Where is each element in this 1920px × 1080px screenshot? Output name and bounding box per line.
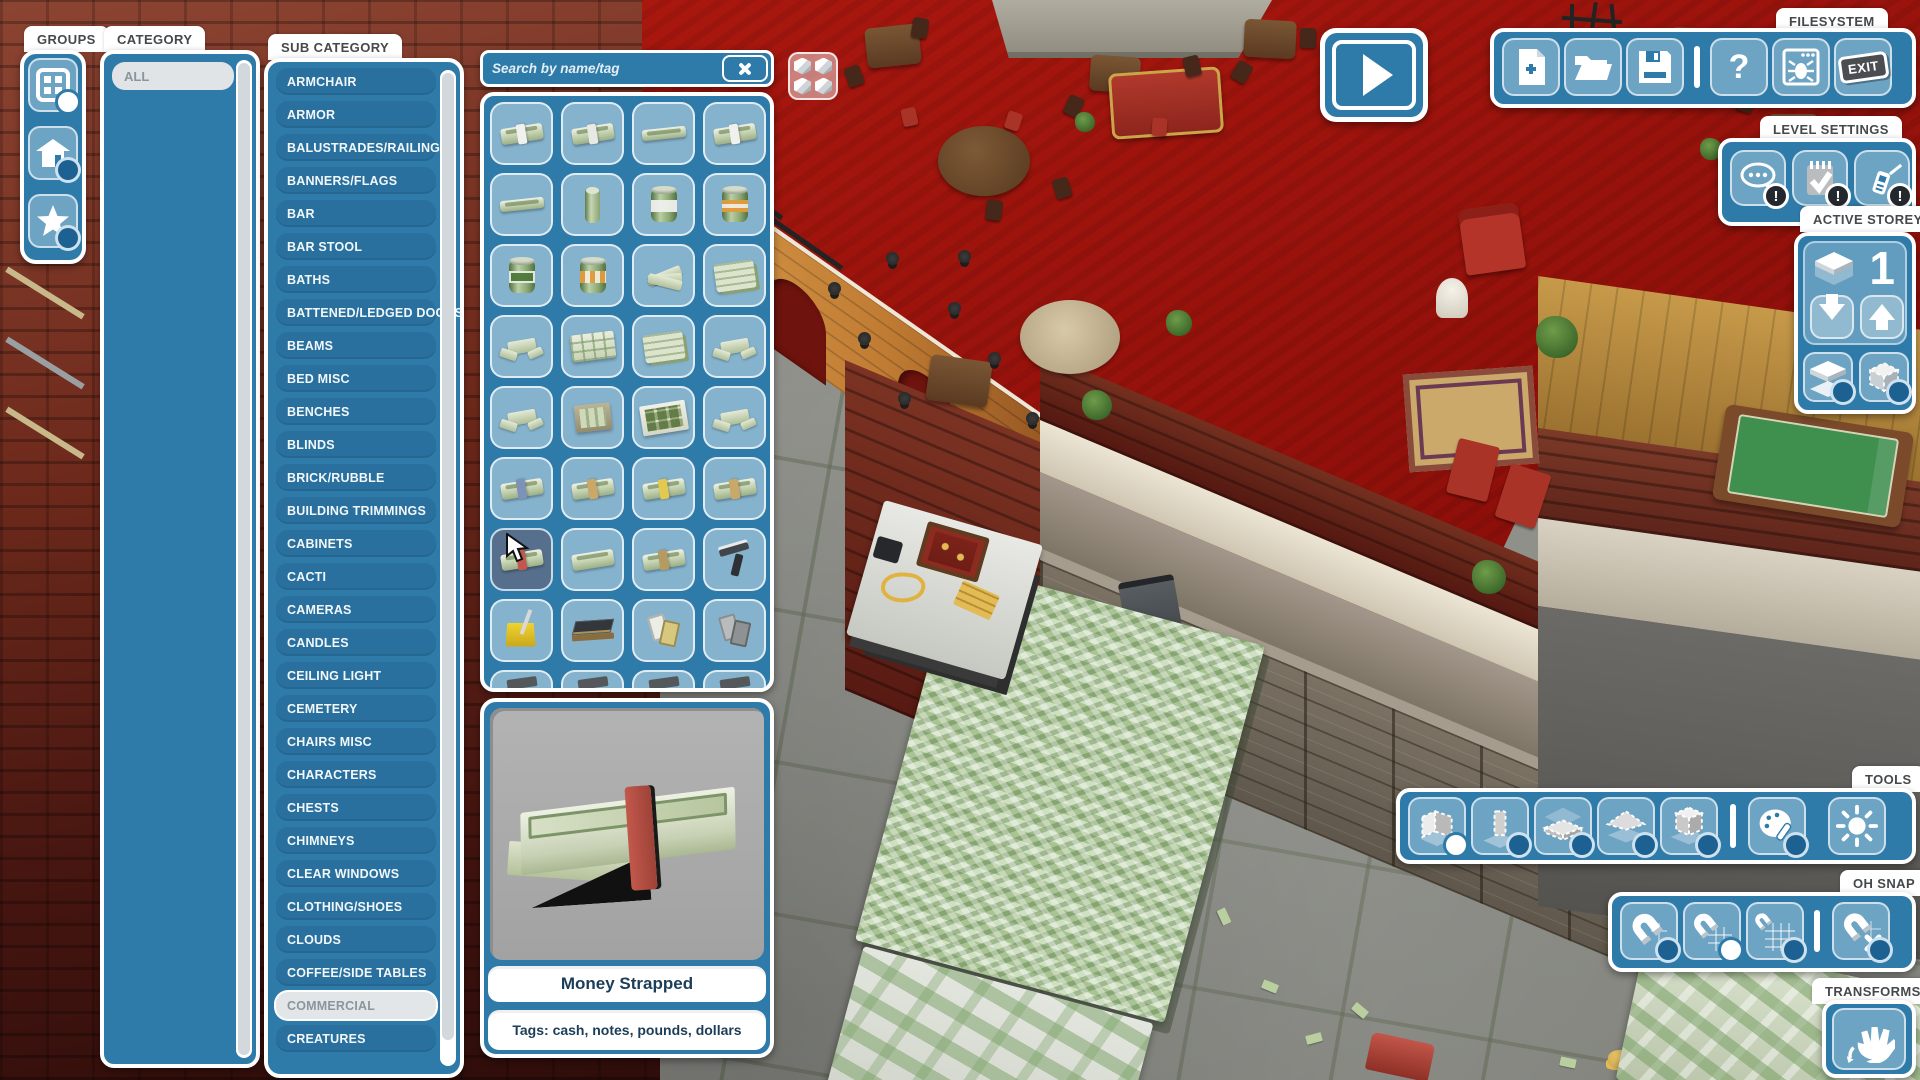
item-partial-icon xyxy=(636,674,692,693)
inactive-badge xyxy=(1830,379,1856,405)
money-pile-roll-icon xyxy=(707,319,763,375)
strap-tan-band-icon xyxy=(565,461,621,517)
money-note-stack-icon xyxy=(636,106,692,162)
item-partial-icon xyxy=(707,674,763,693)
subcategory-item-ceiling-light[interactable]: CEILING LIGHT xyxy=(276,662,436,689)
subcategory-item-banners-flags[interactable]: BANNERS/FLAGS xyxy=(276,167,436,194)
scene-prop-roundtable xyxy=(938,126,1030,196)
subcategory-item-label: CLOTHING/SHOES xyxy=(287,900,402,914)
item-tile-item-partial[interactable] xyxy=(490,670,553,692)
subcategory-item-label: BANNERS/FLAGS xyxy=(287,174,397,188)
cube-icon xyxy=(794,78,811,95)
inactive-badge xyxy=(1506,832,1532,858)
subcategory-item-label: CREATURES xyxy=(287,1032,366,1046)
level-editor-screen: GROUPS CATEGORY ALL xyxy=(0,0,1920,1080)
desk-name-plate-icon xyxy=(565,603,621,659)
subcategory-item-chairs-misc[interactable]: CHAIRS MISC xyxy=(276,728,436,755)
item-tile-wallet-open-grey[interactable] xyxy=(703,599,766,662)
bug-report-icon xyxy=(1781,47,1821,87)
cube-icon xyxy=(815,58,832,75)
money-strap-banded-icon xyxy=(707,106,763,162)
item-tile-money-pile-small[interactable] xyxy=(490,315,553,378)
item-tile-strap-blue-band[interactable] xyxy=(490,457,553,520)
scene-prop-plant xyxy=(1082,390,1112,420)
oh-snap-tab-label: OH SNAP xyxy=(1853,876,1915,891)
strap-blue-band-icon xyxy=(494,461,550,517)
search-close-button[interactable] xyxy=(722,55,768,82)
scene-prop-plant xyxy=(1166,310,1192,336)
subcategory-item-clouds[interactable]: CLOUDS xyxy=(276,926,436,953)
subcategory-item-blinds[interactable]: BLINDS xyxy=(276,431,436,458)
warning-badge: ! xyxy=(1763,183,1789,209)
item-tile-money-bundle-block[interactable] xyxy=(703,244,766,307)
group-all-button[interactable] xyxy=(28,58,78,112)
item-tile-money-strap-banded[interactable] xyxy=(703,102,766,165)
subcategory-item-battened-ledged-doors[interactable]: BATTENED/LEDGED DOORS xyxy=(276,299,436,326)
mop-bucket-icon xyxy=(494,603,550,659)
subcategory-item-label: CHESTS xyxy=(287,801,339,815)
subcategory-item-creatures[interactable]: CREATURES xyxy=(276,1025,436,1052)
snap-fine-grid-button[interactable] xyxy=(1746,902,1804,960)
scene-prop-chair xyxy=(910,17,929,39)
money-bundles-icon xyxy=(636,319,692,375)
scene-prop-chair xyxy=(985,199,1004,221)
coin-can-orange-icon xyxy=(707,177,763,233)
inactive-badge xyxy=(55,157,81,183)
subcategory-item-balustrades-railings[interactable]: BALUSTRADES/RAILINGS xyxy=(276,134,436,161)
subcategory-item-chests[interactable]: CHESTS xyxy=(276,794,436,821)
item-tile-coin-can-striped[interactable] xyxy=(561,244,624,307)
warning-label: ! xyxy=(1898,188,1903,205)
subcategory-item-label: BLINDS xyxy=(287,438,335,452)
scene-prop-table xyxy=(925,354,993,408)
view-cubes-widget[interactable] xyxy=(788,52,838,100)
subcategory-item-label: ARMCHAIR xyxy=(287,75,357,89)
inactive-badge xyxy=(1867,937,1893,963)
item-name-text: Money Strapped xyxy=(561,974,693,994)
active-storey-tab-label: ACTIVE STOREY xyxy=(1813,212,1920,227)
new-file-button[interactable] xyxy=(1502,38,1560,96)
subcategory-item-bar[interactable]: BAR xyxy=(276,200,436,227)
mouse-cursor xyxy=(505,533,535,563)
inactive-badge xyxy=(1886,379,1912,405)
paint-tool-button[interactable] xyxy=(1748,797,1806,855)
help-button[interactable]: ? xyxy=(1710,38,1768,96)
storey-selector: 1 xyxy=(1803,241,1907,345)
subcategory-item-label: BATHS xyxy=(287,273,330,287)
inactive-badge xyxy=(1655,937,1681,963)
cube-icon xyxy=(794,58,811,75)
exit-icon: EXIT xyxy=(1837,50,1889,84)
subcategory-scrollbar[interactable] xyxy=(440,70,456,1066)
wallet-open-grey-icon xyxy=(707,603,763,659)
subcategory-item-chimneys[interactable]: CHIMNEYS xyxy=(276,827,436,854)
level-settings-tab-label: LEVEL SETTINGS xyxy=(1773,122,1889,137)
level-checklist-button[interactable]: ! xyxy=(1792,150,1848,206)
snap-off-button[interactable] xyxy=(1832,902,1890,960)
item-tile-desk-name-plate[interactable] xyxy=(561,599,624,662)
subcategory-item-label: BALUSTRADES/RAILINGS xyxy=(287,141,449,155)
subcategory-item-armor[interactable]: ARMOR xyxy=(276,101,436,128)
item-tile-coin-can-white[interactable] xyxy=(632,173,695,236)
snap-object-button[interactable] xyxy=(1620,902,1678,960)
money-scatter-icon xyxy=(494,390,550,446)
wallet-open-light-icon xyxy=(636,603,692,659)
item-tile-item-partial[interactable] xyxy=(561,670,624,692)
scene-prop-table xyxy=(1243,19,1297,60)
money-strap-bent-icon xyxy=(565,106,621,162)
new-file-icon xyxy=(1513,47,1549,87)
subcategory-item-label: CANDLES xyxy=(287,636,349,650)
category-tab: CATEGORY xyxy=(104,26,205,52)
subcategory-item-label: BATTENED/LEDGED DOORS xyxy=(287,306,463,320)
block-tool-button[interactable] xyxy=(1660,797,1718,855)
subcategory-item-label: COFFEE/SIDE TABLES xyxy=(287,966,427,980)
oh-snap-panel xyxy=(1608,892,1916,972)
divider xyxy=(1694,46,1700,88)
inactive-badge xyxy=(1781,937,1807,963)
active-storey-tab: ACTIVE STOREY xyxy=(1800,206,1920,232)
storey-down-icon xyxy=(1819,304,1845,320)
subcategory-item-label: CEMETERY xyxy=(287,702,358,716)
category-panel: ALL xyxy=(100,50,260,1068)
subcategory-item-candles[interactable]: CANDLES xyxy=(276,629,436,656)
item-tile-strap-rubber-band[interactable] xyxy=(632,528,695,591)
subcategory-item-cameras[interactable]: CAMERAS xyxy=(276,596,436,623)
subcategory-item-label: BENCHES xyxy=(287,405,350,419)
scene-prop-stool xyxy=(958,250,971,263)
item-tile-item-partial[interactable] xyxy=(703,670,766,692)
category-tab-label: CATEGORY xyxy=(117,32,192,47)
play-button[interactable] xyxy=(1325,33,1423,117)
subcategory-item-benches[interactable]: BENCHES xyxy=(276,398,436,425)
money-loose-pile-icon xyxy=(707,390,763,446)
coin-can-white-icon xyxy=(636,177,692,233)
scene-prop-stool xyxy=(886,252,899,265)
item-grid xyxy=(490,102,772,692)
subcategory-item-baths[interactable]: BATHS xyxy=(276,266,436,293)
subcategory-item-brick-rubble[interactable]: BRICK/RUBBLE xyxy=(276,464,436,491)
item-tile-coin-can-orange[interactable] xyxy=(703,173,766,236)
item-tile-money-strap[interactable] xyxy=(490,102,553,165)
subcategory-item-label: CHARACTERS xyxy=(287,768,377,782)
storey-down-button[interactable] xyxy=(1810,295,1854,339)
open-folder-icon xyxy=(1572,50,1614,84)
item-partial-icon xyxy=(494,674,550,693)
group-home-button[interactable] xyxy=(28,126,78,180)
money-tray-icon xyxy=(565,319,621,375)
single-block-button[interactable] xyxy=(1859,352,1909,402)
subcategory-item-label: CLOUDS xyxy=(287,933,341,947)
item-preview-image xyxy=(490,708,764,960)
rotate-hand-icon xyxy=(1843,1015,1895,1063)
scene-prop-stool xyxy=(828,282,841,295)
subcategory-item-label: COMMERCIAL xyxy=(287,999,375,1013)
inactive-badge xyxy=(1695,832,1721,858)
subcategory-item-clothing-shoes[interactable]: CLOTHING/SHOES xyxy=(276,893,436,920)
item-tile-mop-bucket[interactable] xyxy=(490,599,553,662)
money-roll-icon xyxy=(565,177,621,233)
subcategory-item-characters[interactable]: CHARACTERS xyxy=(276,761,436,788)
item-tile-money-strap-bent[interactable] xyxy=(561,102,624,165)
item-tile-money-tray[interactable] xyxy=(561,315,624,378)
subcategory-item-beams[interactable]: BEAMS xyxy=(276,332,436,359)
subcategory-item-label: BAR xyxy=(287,207,315,221)
category-item-all[interactable]: ALL xyxy=(112,62,234,90)
subcategory-item-label: BRICK/RUBBLE xyxy=(287,471,385,485)
coin-can-green-icon xyxy=(494,248,550,304)
scene-prop-stool xyxy=(1026,412,1039,425)
save-button[interactable] xyxy=(1626,38,1684,96)
subcategory-item-cabinets[interactable]: CABINETS xyxy=(276,530,436,557)
active-badge xyxy=(1443,832,1469,858)
level-radio-button[interactable]: ! xyxy=(1854,150,1910,206)
item-tile-money-roll[interactable] xyxy=(561,173,624,236)
subcategory-panel: ARMCHAIRARMORBALUSTRADES/RAILINGSBANNERS… xyxy=(264,58,464,1078)
scene-prop-stool xyxy=(898,392,911,405)
scene-prop-redseat xyxy=(1151,117,1167,136)
scene-prop-whitecloth xyxy=(1020,300,1120,374)
item-tile-money-box[interactable] xyxy=(561,386,624,449)
subcategory-item-clear-windows[interactable]: CLEAR WINDOWS xyxy=(276,860,436,887)
inactive-badge xyxy=(1569,832,1595,858)
subcategory-item-label: CAMERAS xyxy=(287,603,352,617)
subcategory-scroll-thumb[interactable] xyxy=(442,73,454,1040)
rotate-transform-button[interactable] xyxy=(1832,1008,1906,1070)
scene-prop-stool xyxy=(948,302,961,315)
subcategory-item-label: BEAMS xyxy=(287,339,333,353)
scene-prop-plant xyxy=(1075,112,1095,132)
warning-label: ! xyxy=(1774,188,1779,205)
scene-prop-plant xyxy=(1536,316,1578,358)
category-scrollbar[interactable] xyxy=(236,60,252,1058)
cube-icon xyxy=(815,78,832,95)
subcategory-item-coffee-side-tables[interactable]: COFFEE/SIDE TABLES xyxy=(276,959,436,986)
strap-tan-band-2-icon xyxy=(707,461,763,517)
category-item-label: ALL xyxy=(124,69,149,84)
subcategory-tab: SUB CATEGORY xyxy=(268,34,402,60)
scene-prop-plant xyxy=(1472,560,1506,594)
play-button-outline xyxy=(1332,40,1416,110)
tools-tab-label: TOOLS xyxy=(1865,772,1912,787)
subcategory-item-label: CEILING LIGHT xyxy=(287,669,381,683)
gold-bars xyxy=(953,580,1000,620)
storey-number: 1 xyxy=(1869,241,1895,295)
item-tile-money-loose-pile[interactable] xyxy=(703,386,766,449)
subcategory-item-cacti[interactable]: CACTI xyxy=(276,563,436,590)
item-tile-coin-can-green[interactable] xyxy=(490,244,553,307)
item-tile-money-scatter[interactable] xyxy=(490,386,553,449)
item-partial-icon xyxy=(565,674,621,693)
inactive-badge xyxy=(1783,832,1809,858)
help-icon: ? xyxy=(1729,48,1750,87)
group-favorites-button[interactable] xyxy=(28,194,78,248)
wall-tool-button[interactable] xyxy=(1408,797,1466,855)
money-pile-small-icon xyxy=(494,319,550,375)
jewelry-display-case xyxy=(916,521,990,583)
scene-prop-stool xyxy=(858,332,871,345)
roof-tool-button[interactable] xyxy=(1597,797,1655,855)
inactive-badge xyxy=(1632,832,1658,858)
item-tile-strap-yellow-band[interactable] xyxy=(632,457,695,520)
filesystem-tab-label: FILESYSTEM xyxy=(1789,14,1875,29)
subcategory-item-building-trimmings[interactable]: BUILDING TRIMMINGS xyxy=(276,497,436,524)
lighting-tool-icon xyxy=(1834,803,1880,849)
snap-grid-button[interactable] xyxy=(1683,902,1741,960)
item-name-label: Money Strapped xyxy=(488,966,766,1002)
money-bundle-block-icon xyxy=(707,248,763,304)
subcategory-item-label: ARMOR xyxy=(287,108,335,122)
save-icon xyxy=(1636,48,1674,86)
item-tile-wallet-open-light[interactable] xyxy=(632,599,695,662)
strap-rubber-band-icon xyxy=(636,532,692,588)
item-tags-text: Tags: cash, notes, pounds, dollars xyxy=(512,1022,741,1038)
divider xyxy=(1814,910,1820,952)
scene-prop-chair xyxy=(1300,28,1316,48)
item-tile-money-brick-tray[interactable] xyxy=(632,386,695,449)
item-tags-label: Tags: cash, notes, pounds, dollars xyxy=(488,1010,766,1050)
play-button-frame xyxy=(1320,28,1428,122)
subcategory-list: ARMCHAIRARMORBALUSTRADES/RAILINGSBANNERS… xyxy=(276,68,436,1058)
category-scroll-thumb[interactable] xyxy=(238,63,250,1055)
subcategory-item-label: CHIMNEYS xyxy=(287,834,355,848)
exit-button[interactable]: EXIT xyxy=(1834,38,1892,96)
lighting-tool-button[interactable] xyxy=(1828,797,1886,855)
item-browser-panel xyxy=(480,92,774,692)
groups-panel xyxy=(20,50,86,264)
item-tile-item-partial[interactable] xyxy=(632,670,695,692)
search-bar[interactable]: Search by name/tag xyxy=(480,50,774,87)
money-fan-icon xyxy=(636,248,692,304)
item-tile-money-stack-flat[interactable] xyxy=(490,173,553,236)
subcategory-item-bed-misc[interactable]: BED MISC xyxy=(276,365,436,392)
open-folder-button[interactable] xyxy=(1564,38,1622,96)
money-box-icon xyxy=(565,390,621,446)
subcategory-item-label: CLEAR WINDOWS xyxy=(287,867,399,881)
item-tile-strap-tan-band-2[interactable] xyxy=(703,457,766,520)
show-all-floors-button[interactable] xyxy=(1803,352,1853,402)
level-comments-button[interactable]: ! xyxy=(1730,150,1786,206)
floor-tool-button[interactable] xyxy=(1534,797,1592,855)
item-tile-money-fan[interactable] xyxy=(632,244,695,307)
transforms-tab-label: TRANSFORMS xyxy=(1825,984,1920,999)
subcategory-item-label: BED MISC xyxy=(287,372,350,386)
gold-necklace xyxy=(880,571,926,604)
warning-label: ! xyxy=(1836,188,1841,205)
subcategory-item-label: CHAIRS MISC xyxy=(287,735,372,749)
subcategory-item-label: BUILDING TRIMMINGS xyxy=(287,504,426,518)
subcategory-tab-label: SUB CATEGORY xyxy=(281,40,389,55)
item-preview-panel: Money Strapped Tags: cash, notes, pounds… xyxy=(480,698,774,1058)
active-badge xyxy=(1718,937,1744,963)
money-brick-tray-icon xyxy=(636,390,692,446)
search-input[interactable]: Search by name/tag xyxy=(483,61,722,76)
storey-up-button[interactable] xyxy=(1860,295,1904,339)
item-tile-money-bundles[interactable] xyxy=(632,315,695,378)
divider xyxy=(1730,804,1736,848)
storey-slab-icon xyxy=(1809,245,1859,289)
strap-yellow-band-icon xyxy=(636,461,692,517)
scene-prop-stool xyxy=(988,352,1001,365)
active-storey-panel: 1 xyxy=(1794,232,1916,414)
column-tool-button[interactable] xyxy=(1471,797,1529,855)
subcategory-item-commercial[interactable]: COMMERCIAL xyxy=(276,992,436,1019)
item-tile-money-note-stack[interactable] xyxy=(632,102,695,165)
money-strap-icon xyxy=(494,106,550,162)
groups-tab: GROUPS xyxy=(24,26,109,52)
subcategory-item-cemetery[interactable]: CEMETERY xyxy=(276,695,436,722)
storey-up-icon xyxy=(1869,304,1895,320)
camera-prop xyxy=(872,536,903,564)
subcategory-item-armchair[interactable]: ARMCHAIR xyxy=(276,68,436,95)
subcategory-item-label: BAR STOOL xyxy=(287,240,362,254)
scene-prop-lamp xyxy=(1436,278,1468,318)
item-tile-squeegee[interactable] xyxy=(703,528,766,591)
coin-can-striped-icon xyxy=(565,248,621,304)
filesystem-panel: ? EXIT xyxy=(1490,28,1916,108)
subcategory-item-label: CABINETS xyxy=(287,537,353,551)
strap-plain-icon xyxy=(565,532,621,588)
subcategory-item-bar-stool[interactable]: BAR STOOL xyxy=(276,233,436,260)
scene-prop-armchair xyxy=(1458,202,1527,276)
tools-panel xyxy=(1396,788,1916,864)
stone-steps xyxy=(992,0,1272,58)
bug-report-button[interactable] xyxy=(1772,38,1830,96)
item-tile-strap-tan-band[interactable] xyxy=(561,457,624,520)
groups-tab-label: GROUPS xyxy=(37,32,96,47)
inactive-badge xyxy=(55,225,81,251)
squeegee-icon xyxy=(707,532,763,588)
item-tile-strap-plain[interactable] xyxy=(561,528,624,591)
transforms-panel xyxy=(1822,1000,1916,1078)
subcategory-item-label: CACTI xyxy=(287,570,326,584)
item-tile-money-pile-roll[interactable] xyxy=(703,315,766,378)
active-badge xyxy=(55,89,81,115)
money-stack-flat-icon xyxy=(494,177,550,233)
